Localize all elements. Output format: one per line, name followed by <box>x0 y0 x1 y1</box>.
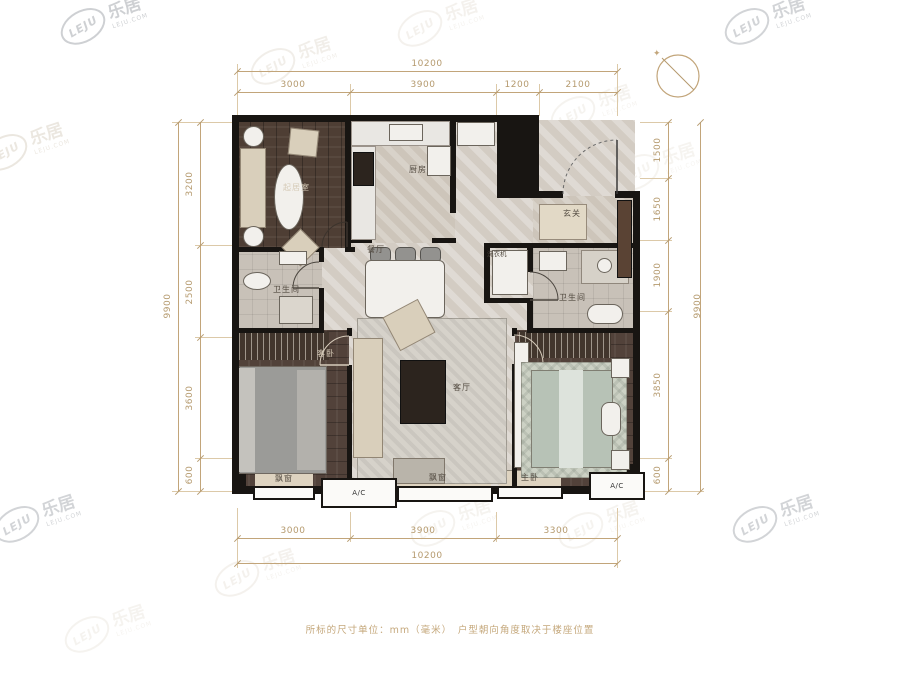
room-label-bay-left: 飘窗 <box>275 473 293 484</box>
bathroom-sink <box>539 251 567 271</box>
ac-unit: A/C <box>589 472 645 500</box>
kitchen-sink <box>389 124 423 141</box>
dim-right-seg: 1500 <box>653 130 663 170</box>
pillow <box>601 402 621 436</box>
leju-watermark: LEJU 乐居LEJU.COM <box>0 489 84 547</box>
compass-needle-icon <box>662 58 694 90</box>
dim-top-total: 10200 <box>407 59 447 69</box>
fridge <box>427 146 451 176</box>
dim-bottom-seg: 3300 <box>536 526 576 536</box>
toilet <box>243 272 271 290</box>
dim-right-seg: 600 <box>653 455 663 495</box>
bay-window <box>397 486 493 502</box>
room-label-sitting: 起居室 <box>283 182 310 193</box>
oval-table <box>274 164 304 230</box>
room-label-bay-center: 飘窗 <box>429 472 447 483</box>
footer-note: 所标的尺寸单位：mm（毫米） 户型朝向角度取决于楼座位置 <box>0 622 900 636</box>
room-label-bath-left: 卫生间 <box>273 284 300 295</box>
room-label-guest-bedroom: 客卧 <box>317 348 335 359</box>
toilet <box>587 304 623 324</box>
leju-logo-oval: LEJU <box>54 1 112 53</box>
shower <box>279 296 313 324</box>
room-label-kitchen: 厨房 <box>409 164 427 175</box>
dim-top-seg: 1200 <box>497 80 537 90</box>
dim-bottom-seg: 3000 <box>273 526 313 536</box>
dim-left-seg: 2500 <box>185 272 195 312</box>
dim-right-seg: 1900 <box>653 255 663 295</box>
ac-label: A/C <box>352 489 366 497</box>
floorplan: A/C A/C 起居室 厨房 玄关 餐厅 洗衣机 卫生间 卫生间 客卧 客厅 主… <box>237 120 635 490</box>
room-label-bath-right: 卫生间 <box>559 292 586 303</box>
nightstand <box>611 450 630 470</box>
leju-watermark: LEJU 乐居LEJU.COM <box>55 0 150 49</box>
coffee-table <box>400 360 446 424</box>
blanket <box>297 370 325 470</box>
room-label-master-bedroom: 主卧 <box>521 472 539 483</box>
entry-cabinet <box>617 200 632 278</box>
ac-label: A/C <box>610 482 624 490</box>
room-label-living: 客厅 <box>453 382 471 393</box>
room-label-entry: 玄关 <box>563 208 581 219</box>
dim-top-seg: 2100 <box>558 80 598 90</box>
living-sofa <box>353 338 383 458</box>
room-label-dining: 餐厅 <box>367 244 385 255</box>
dim-left-seg: 3200 <box>185 164 195 204</box>
stove <box>353 152 374 186</box>
ac-unit: A/C <box>321 478 397 508</box>
dim-right-seg: 1650 <box>653 189 663 229</box>
leju-watermark: LEJU 乐居LEJU.COM <box>727 489 822 547</box>
leju-watermark: LEJU 乐居LEJU.COM <box>209 543 304 601</box>
dim-top-seg: 3000 <box>273 80 313 90</box>
leju-watermark: LEJU 乐居LEJU.COM <box>553 495 648 553</box>
pillow <box>239 368 255 472</box>
bay-window <box>497 486 563 499</box>
leju-watermark: LEJU 乐居LEJU.COM <box>0 117 72 175</box>
dim-right-seg: 3850 <box>653 365 663 405</box>
dim-left-seg: 600 <box>185 455 195 495</box>
north-marker-icon: ✦ <box>653 49 661 59</box>
square-table <box>288 128 320 158</box>
dim-bottom-total: 10200 <box>407 551 447 561</box>
leju-watermark: LEJU 乐居LEJU.COM <box>719 0 814 49</box>
dim-bottom-seg: 3900 <box>403 526 443 536</box>
sofa <box>240 148 266 228</box>
bed-runner <box>559 370 583 468</box>
leju-watermark: LEJU 乐居LEJU.COM <box>392 0 487 51</box>
utility-counter <box>457 122 495 146</box>
nightstand <box>611 358 630 378</box>
side-table <box>243 226 264 247</box>
bay-window <box>253 486 315 500</box>
dim-top-seg: 3900 <box>403 80 443 90</box>
shower-drain <box>597 258 612 273</box>
compass-circle <box>657 55 699 97</box>
dim-right-total: 9900 <box>693 286 703 326</box>
side-table <box>243 126 264 147</box>
room-label-laundry: 洗衣机 <box>487 248 507 258</box>
dim-left-total: 9900 <box>163 286 173 326</box>
bathroom-sink <box>279 251 307 265</box>
dim-left-seg: 3600 <box>185 378 195 418</box>
compass: ✦ <box>648 46 704 102</box>
